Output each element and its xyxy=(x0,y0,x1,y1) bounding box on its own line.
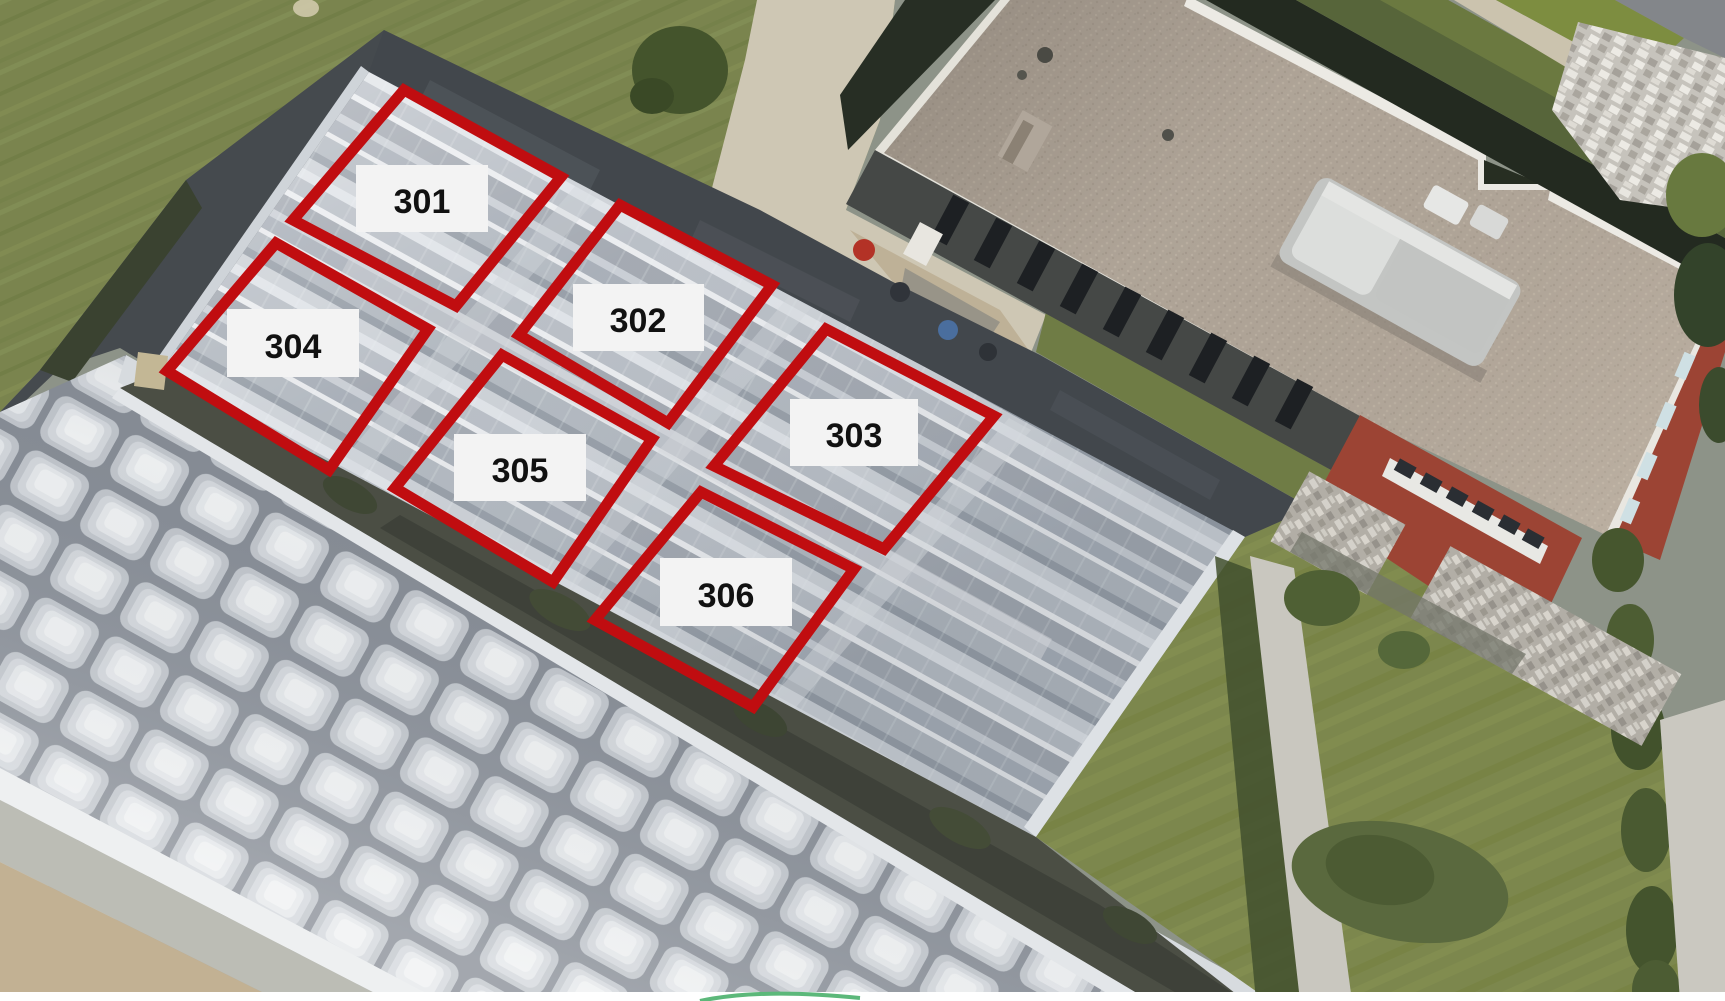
svg-text:306: 306 xyxy=(698,577,755,615)
svg-text:301: 301 xyxy=(394,183,451,221)
svg-text:304: 304 xyxy=(265,328,322,366)
svg-text:303: 303 xyxy=(826,417,883,455)
svg-text:305: 305 xyxy=(492,452,549,490)
svg-text:302: 302 xyxy=(610,302,667,340)
